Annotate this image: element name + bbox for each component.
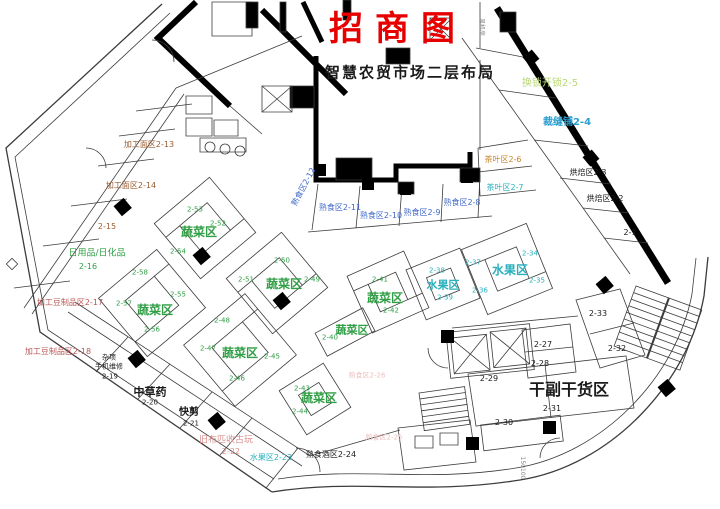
label-stall-2-33: 2-33 bbox=[589, 310, 607, 318]
label-stall-2-37: 2-37 bbox=[465, 260, 481, 267]
label-stall-2-31: 2-31 bbox=[543, 405, 561, 413]
label-zone-veg-d: 蔬菜区 bbox=[222, 347, 258, 359]
label-stall-2-45: 2-45 bbox=[264, 354, 280, 361]
label-zone-veg-e: 蔬菜区 bbox=[336, 325, 369, 336]
label-dimension-text: 150100 bbox=[519, 457, 525, 480]
label-stall-2-57: 2-57 bbox=[116, 301, 132, 308]
label-shop-2-11: 熟食区2-11 bbox=[319, 204, 361, 212]
label-page-subtitle: 智慧农贸市场二层布局 bbox=[325, 66, 495, 81]
label-shop-2-5: 换锁开锁2-5 bbox=[522, 79, 578, 89]
floorplan-canvas: 招商图智慧农贸市场二层布局换锁开锁2-5裁缝铺2-4烘焙区2-3烘焙区2-22-… bbox=[0, 0, 720, 509]
label-zone-haircut: 快剪 bbox=[179, 408, 199, 418]
label-shop-2-19-line1: 杂项 bbox=[102, 355, 116, 362]
label-stall-2-30: 2-30 bbox=[495, 419, 513, 427]
label-stall-2-32: 2-32 bbox=[608, 345, 626, 353]
label-shop-2-15: 2-15 bbox=[98, 223, 116, 231]
label-stall-2-53: 2-53 bbox=[187, 207, 203, 214]
label-zone-herbs: 中草药 bbox=[134, 387, 167, 398]
label-shop-2-23: 水果区2-23 bbox=[250, 454, 292, 462]
label-shop-2-6: 茶叶区2-6 bbox=[484, 156, 521, 164]
label-stall-2-40: 2-40 bbox=[322, 335, 338, 342]
label-zone-fruit-left: 水果区 bbox=[427, 280, 460, 291]
label-shop-2-17: 加工豆制品区2-17 bbox=[37, 299, 103, 307]
label-shop-2-14: 加工面区2-14 bbox=[106, 182, 156, 190]
label-shop-2-13: 加工面区2-13 bbox=[124, 141, 174, 149]
label-shop-2-25: 熟食区2-25 bbox=[366, 435, 403, 442]
label-zone-veg-a: 蔬菜区 bbox=[181, 226, 217, 238]
label-shop-2-22-num: 2-22 bbox=[222, 448, 240, 456]
label-shop-2-3: 烘焙区2-3 bbox=[569, 169, 606, 177]
label-shop-2-26: 熟食区2-26 bbox=[349, 373, 386, 380]
label-room-fan: 风机房 bbox=[478, 18, 484, 36]
label-shop-2-4: 裁缝铺2-4 bbox=[543, 118, 591, 128]
label-shop-2-21-num: 2-21 bbox=[183, 421, 199, 428]
label-stall-2-28: 2-28 bbox=[531, 360, 549, 368]
label-stall-2-58: 2-58 bbox=[132, 270, 148, 277]
label-shop-2-24: 熟食酒区2-24 bbox=[306, 451, 356, 459]
label-stall-2-51: 2-51 bbox=[238, 277, 254, 284]
label-stall-2-52: 2-52 bbox=[210, 221, 226, 228]
label-zone-veg-b: 蔬菜区 bbox=[137, 304, 173, 316]
label-stall-2-36: 2-36 bbox=[472, 288, 488, 295]
label-shop-2-8: 熟食区2-8 bbox=[443, 199, 480, 207]
label-stall-2-27: 2-27 bbox=[534, 341, 552, 349]
label-stall-2-29: 2-29 bbox=[480, 375, 498, 383]
label-stall-2-42: 2-42 bbox=[383, 308, 399, 315]
label-stall-2-56: 2-56 bbox=[144, 327, 160, 334]
label-stall-2-54: 2-54 bbox=[170, 249, 186, 256]
label-shop-2-19-num: 2-19 bbox=[102, 374, 118, 381]
label-stall-2-35: 2-35 bbox=[529, 278, 545, 285]
label-shop-2-1: 2-1 bbox=[623, 229, 636, 237]
label-shop-2-2: 烘焙区2-2 bbox=[586, 195, 623, 203]
label-stall-2-34: 2-34 bbox=[522, 251, 538, 258]
label-zone-daily-goods: 日用品/日化品 bbox=[68, 250, 125, 259]
label-stall-2-55: 2-55 bbox=[170, 292, 186, 299]
label-stall-2-43: 2-43 bbox=[294, 386, 310, 393]
label-stall-2-47: 2-47 bbox=[200, 346, 216, 353]
label-stall-2-46: 2-46 bbox=[229, 376, 245, 383]
label-shop-2-9: 熟食区2-9 bbox=[403, 209, 440, 217]
label-stall-2-44: 2-44 bbox=[292, 409, 308, 416]
label-stall-2-49: 2-49 bbox=[304, 277, 320, 284]
label-stall-2-38: 2-38 bbox=[429, 268, 445, 275]
label-shop-2-10: 熟食区2-10 bbox=[360, 212, 402, 220]
label-stall-2-48: 2-48 bbox=[214, 318, 230, 325]
label-zone-veg-g: 蔬菜区 bbox=[301, 392, 337, 404]
label-zone-veg-f: 蔬菜区 bbox=[367, 292, 403, 304]
label-shop-2-12: 熟食区2-12 bbox=[291, 167, 318, 208]
label-zone-veg-c: 蔬菜区 bbox=[266, 278, 302, 290]
label-zone-fruit-right: 水果区 bbox=[492, 264, 528, 276]
label-shop-2-7: 茶叶区2-7 bbox=[486, 184, 523, 192]
label-shop-2-22-line1: 旧布匹收古玩 bbox=[199, 437, 253, 446]
label-shop-2-19-line2: 手机维修 bbox=[95, 364, 123, 371]
label-zone-dry-goods: 干副干货区 bbox=[529, 382, 609, 398]
labels-layer: 招商图智慧农贸市场二层布局换锁开锁2-5裁缝铺2-4烘焙区2-3烘焙区2-22-… bbox=[0, 0, 720, 509]
label-stall-2-39: 2-39 bbox=[437, 295, 453, 302]
label-stall-2-50: 2-50 bbox=[274, 258, 290, 265]
label-page-title: 招商图 bbox=[329, 12, 467, 46]
label-shop-2-20-num: 2-20 bbox=[142, 400, 158, 407]
label-shop-2-18: 加工豆制品区2-18 bbox=[25, 348, 91, 356]
label-shop-2-16: 2-16 bbox=[79, 263, 97, 271]
label-stall-2-41: 2-41 bbox=[372, 277, 388, 284]
